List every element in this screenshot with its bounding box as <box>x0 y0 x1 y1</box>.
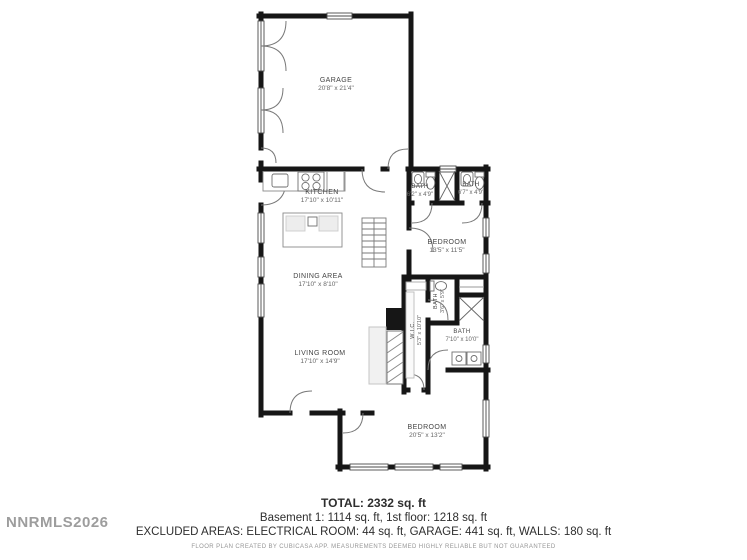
kitchen-fixtures <box>263 172 345 248</box>
floor-plan-drawing <box>0 0 747 560</box>
toilet-icon <box>430 281 434 291</box>
total-area-text: TOTAL: 2332 sq. ft <box>0 497 747 510</box>
electrical-room-block <box>386 308 404 330</box>
vanity-sink-icon <box>467 352 481 365</box>
kitchen-island <box>283 213 342 247</box>
stairs-down-hatch <box>387 331 403 384</box>
floor-areas-text: Basement 1: 1114 sq. ft, 1st floor: 1218… <box>0 512 747 524</box>
vanity-sink-icon <box>452 352 466 365</box>
excluded-areas-text: EXCLUDED AREAS: ELECTRICAL ROOM: 44 sq. … <box>0 526 747 538</box>
floor-plan-page: GARAGE 20'8" x 21'4" KITCHEN 17'10" x 10… <box>0 0 747 560</box>
living-room-furniture <box>369 327 386 384</box>
summary-footer: TOTAL: 2332 sq. ft Basement 1: 1114 sq. … <box>0 497 747 550</box>
stove-icon <box>298 172 324 191</box>
stairs-up <box>362 218 386 267</box>
toilet-icon <box>426 172 435 177</box>
mls-watermark: NNRMLS2026 <box>6 514 109 531</box>
disclaimer-text: FLOOR PLAN CREATED BY CUBICASA APP. MEAS… <box>0 544 747 550</box>
toilet-icon <box>475 172 484 177</box>
